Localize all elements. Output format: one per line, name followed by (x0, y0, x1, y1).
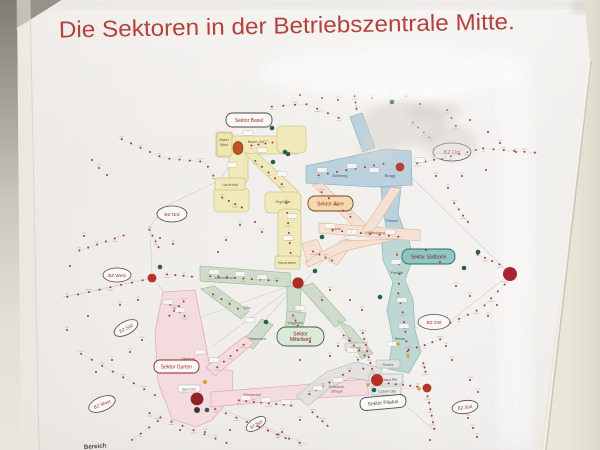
svg-text:Rotsee: Rotsee (382, 363, 393, 367)
svg-text:Bern Ost: Bern Ost (182, 387, 195, 391)
svg-text:Basel: Basel (220, 138, 229, 142)
svg-text:Sektor Basel: Sektor Basel (235, 118, 263, 124)
svg-text:Bözberg: Bözberg (333, 173, 348, 178)
svg-text:Bereich: Bereich (84, 442, 107, 450)
svg-text:Laufental: Laufental (222, 183, 238, 187)
svg-text:Reuss: Reuss (395, 337, 405, 341)
svg-text:Freiamt: Freiamt (386, 219, 398, 223)
svg-text:Luzern GB: Luzern GB (378, 390, 396, 394)
svg-text:West: West (220, 143, 228, 147)
svg-text:BZ Nrd: BZ Nrd (164, 212, 180, 218)
svg-text:Entlebuch-: Entlebuch- (329, 385, 347, 389)
svg-text:BZ Ost: BZ Ost (427, 320, 443, 326)
svg-text:Ergolztal: Ergolztal (276, 200, 291, 204)
svg-text:Basel Ost: Basel Ost (248, 140, 265, 144)
svg-text:Sektor Aare: Sektor Aare (317, 201, 344, 207)
svg-text:Brugg: Brugg (385, 173, 396, 178)
svg-text:Sektor Gurten: Sektor Gurten (161, 364, 192, 370)
svg-text:BZ West: BZ West (108, 273, 126, 278)
svg-text:Striegel: Striegel (331, 390, 343, 394)
svg-text:Mittelland: Mittelland (290, 337, 312, 343)
svg-text:Hauenstein: Hauenstein (278, 261, 296, 265)
svg-text:Sektor Südbahn: Sektor Südbahn (411, 254, 447, 260)
svg-text:Gäu: Gäu (243, 306, 250, 310)
